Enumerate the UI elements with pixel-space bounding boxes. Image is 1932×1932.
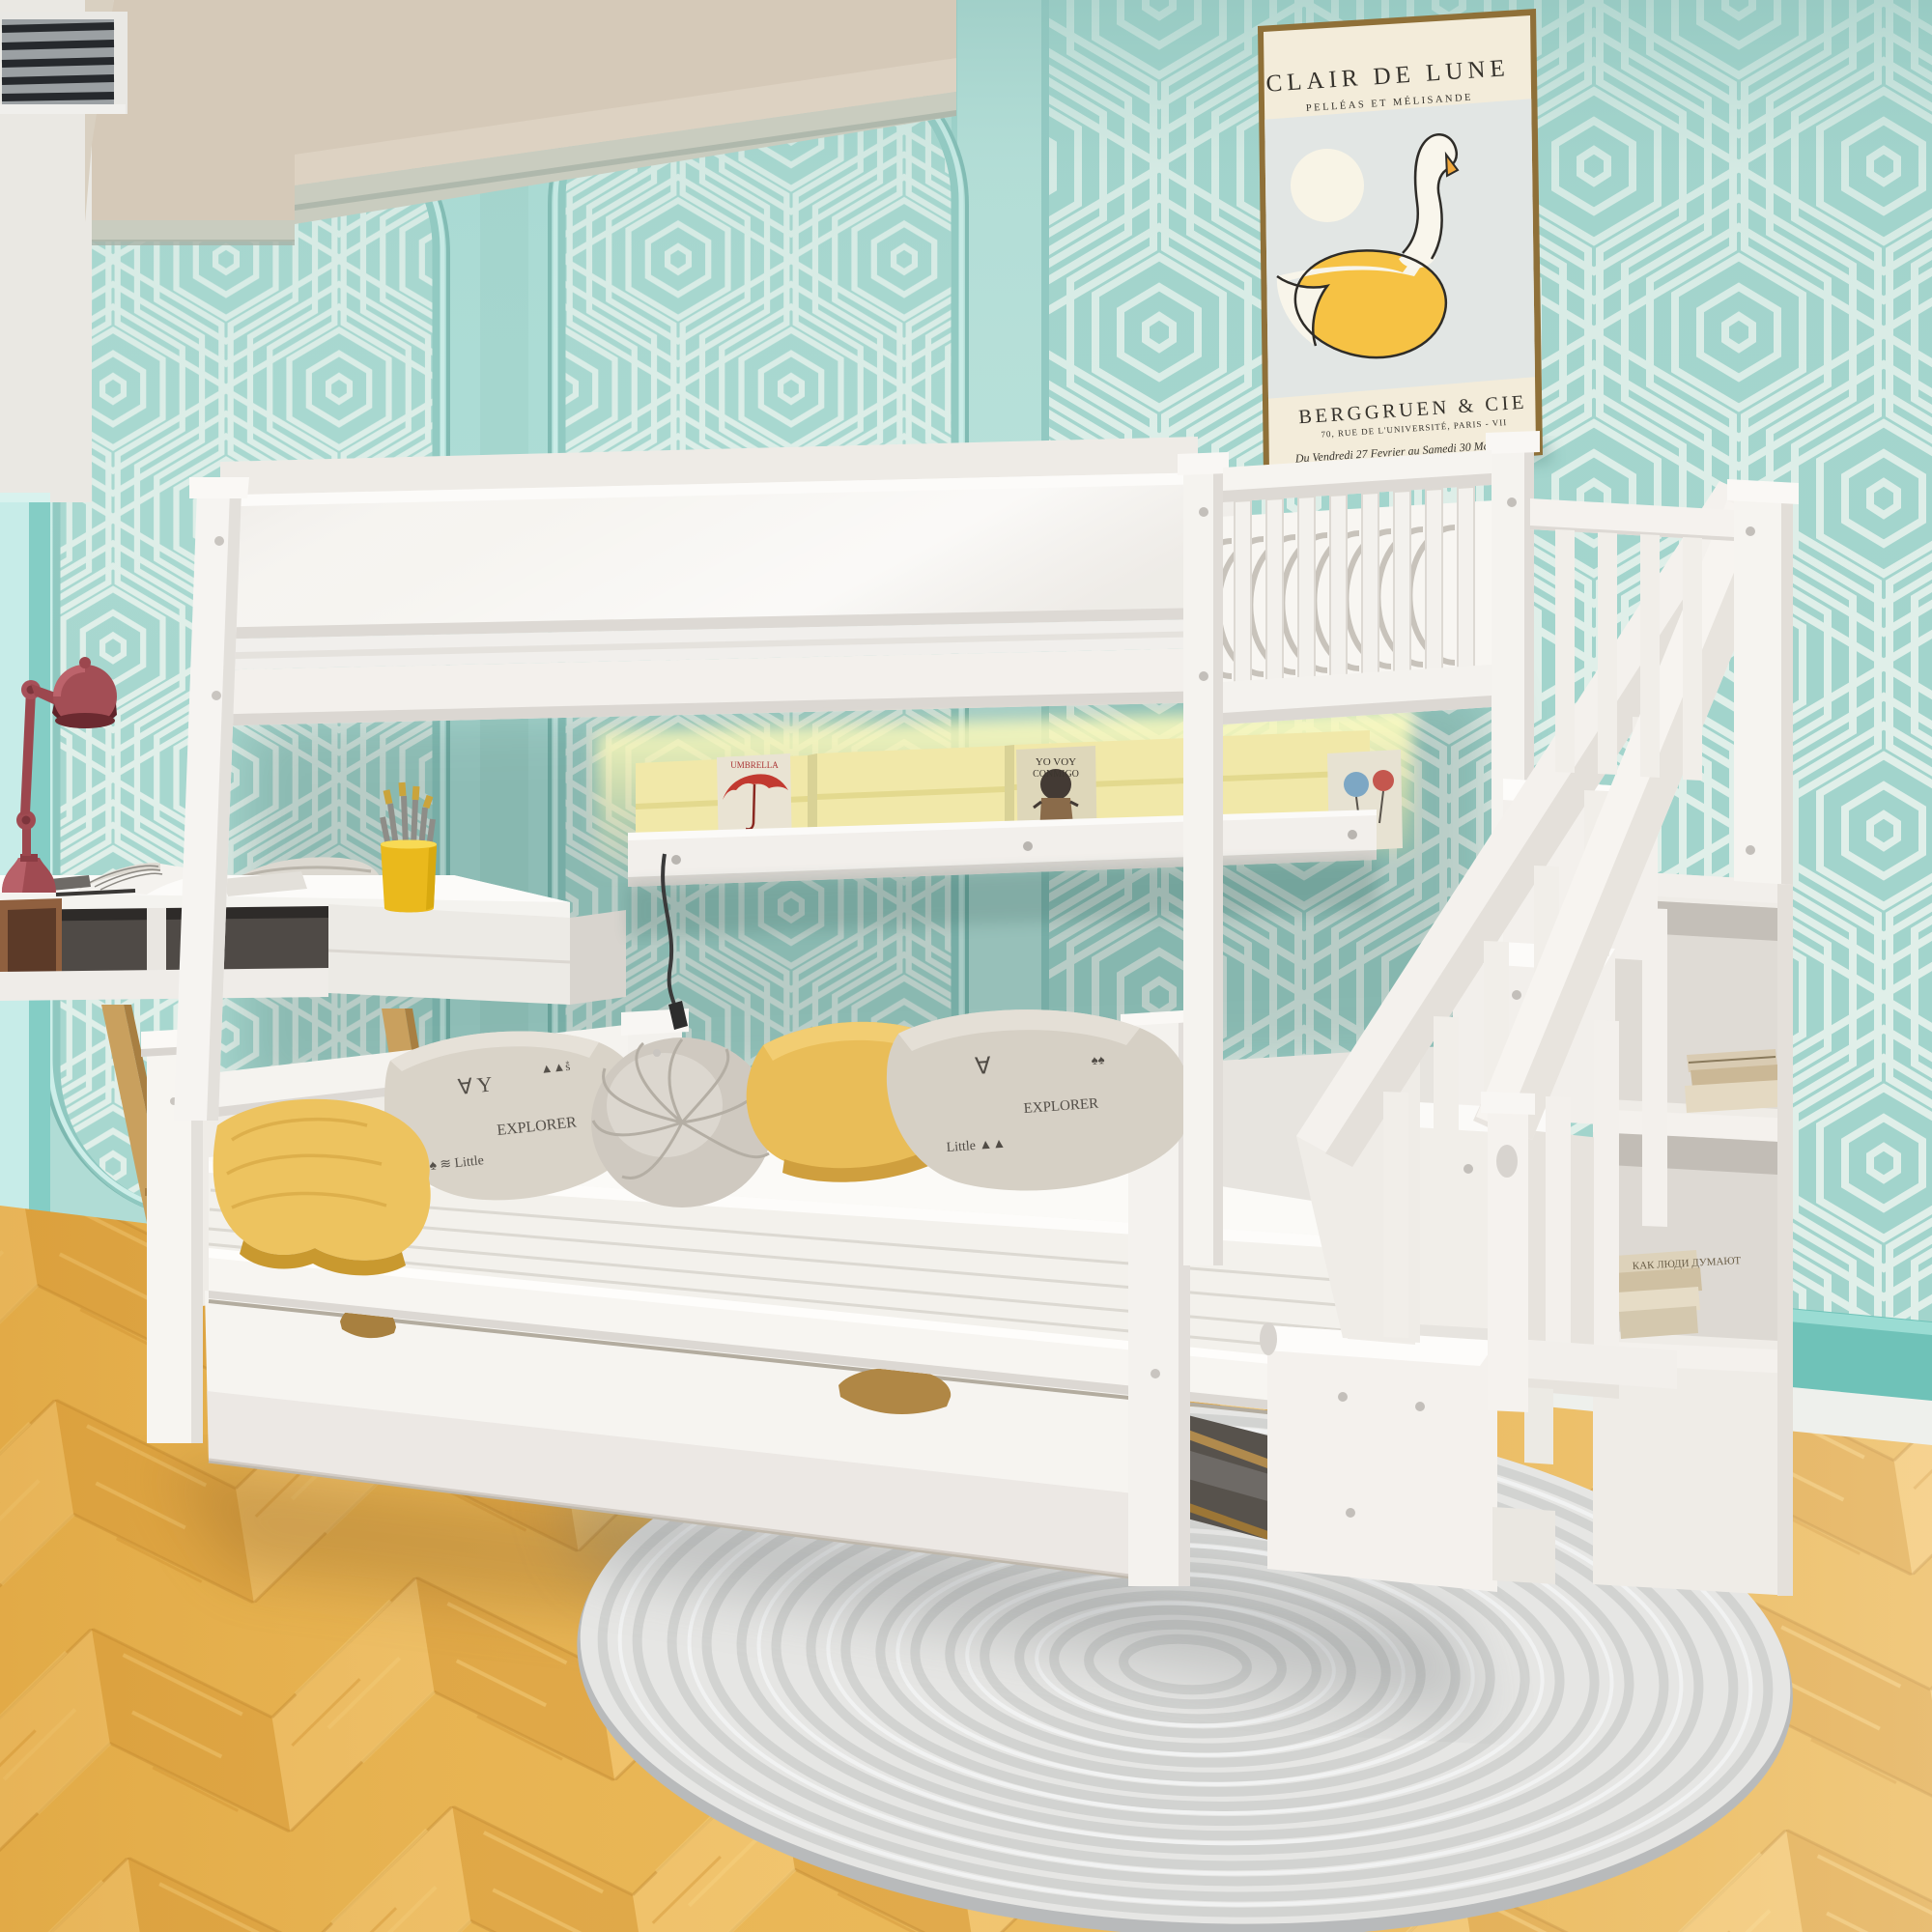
svg-text:♠♠: ♠♠ [1091, 1052, 1105, 1067]
svg-text:∀ Y: ∀ Y [457, 1071, 494, 1099]
svg-text:UMBRELLA: UMBRELLA [730, 760, 779, 770]
svg-text:YO VOY: YO VOY [1036, 756, 1076, 768]
svg-text:▲▲ṧ: ▲▲ṧ [540, 1059, 571, 1076]
svg-text:∀: ∀ [975, 1054, 993, 1080]
svg-text:CONMIGO: CONMIGO [1033, 769, 1079, 780]
